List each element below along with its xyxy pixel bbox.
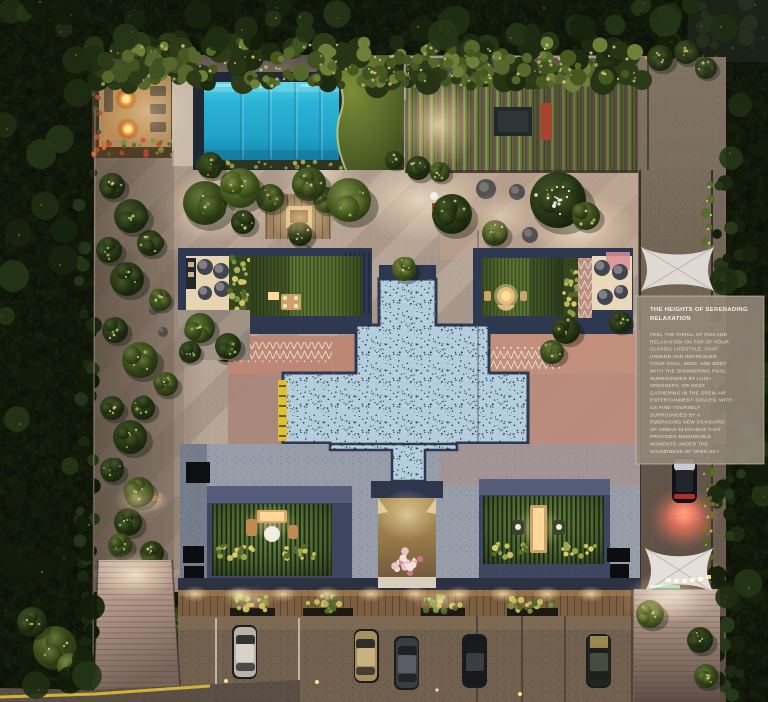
svg-text:YOUR SOUL, MIND, AND BODY: YOUR SOUL, MIND, AND BODY <box>650 361 728 367</box>
svg-text:MOMENTS UNDER THE: MOMENTS UNDER THE <box>650 442 709 448</box>
svg-text:SURROUNDED BY A: SURROUNDED BY A <box>650 412 701 418</box>
svg-text:SOUNDNESS OF OPEN SKY: SOUNDNESS OF OPEN SKY <box>650 449 720 455</box>
svg-text:RELAXATION: RELAXATION <box>650 316 691 322</box>
svg-text:THE HEIGHTS OF SERENADING: THE HEIGHTS OF SERENADING <box>650 307 748 313</box>
svg-text:GREENERY, OR HOST: GREENERY, OR HOST <box>650 383 705 389</box>
svg-text:FEEL THE THRILL OF FUN AND: FEEL THE THRILL OF FUN AND <box>650 332 727 338</box>
svg-text:UNWIND AND REFRESHES: UNWIND AND REFRESHES <box>650 354 717 360</box>
svg-text:OF URBAN ELEGANCE THAT: OF URBAN ELEGANCE THAT <box>650 427 721 433</box>
svg-text:PROVIDES MEMORABLE: PROVIDES MEMORABLE <box>650 434 712 440</box>
svg-text:RELAXATION ON TOP OF YOUR: RELAXATION ON TOP OF YOUR <box>650 339 729 345</box>
svg-text:EMBRACING NEW STANDARD: EMBRACING NEW STANDARD <box>650 420 725 426</box>
svg-text:US FIND YOURSELF: US FIND YOURSELF <box>650 405 700 411</box>
svg-text:GATHERING IN THE OPEN-AIR: GATHERING IN THE OPEN-AIR <box>650 390 726 396</box>
svg-text:WITH THE SHIMMERING POOL: WITH THE SHIMMERING POOL <box>650 369 727 375</box>
svg-text:CLASSIC LIFESTYLE, THAT: CLASSIC LIFESTYLE, THAT <box>650 347 718 353</box>
svg-text:ENTERTAINMENT SPACES, WITH: ENTERTAINMENT SPACES, WITH <box>650 398 733 404</box>
svg-text:SURROUNDED BY LUSH: SURROUNDED BY LUSH <box>650 376 711 382</box>
